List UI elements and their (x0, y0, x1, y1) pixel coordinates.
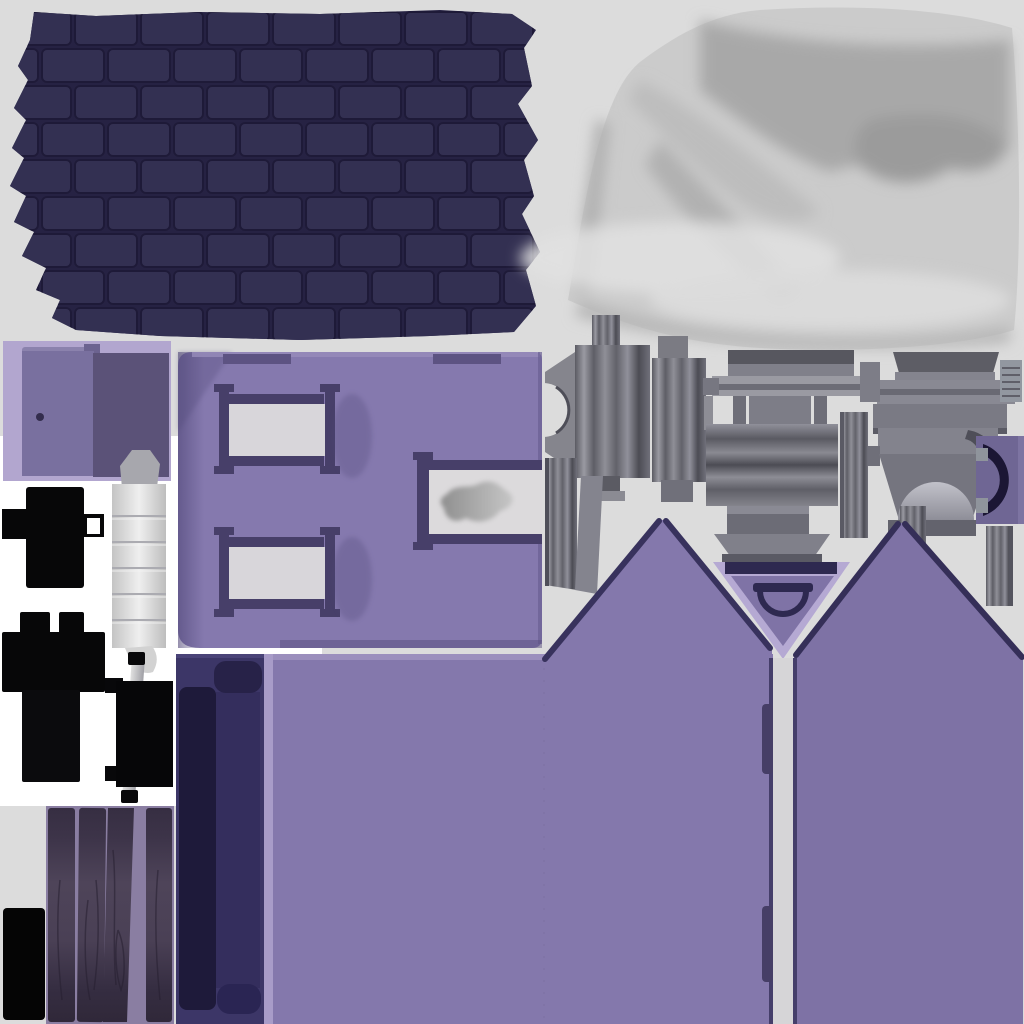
plank-2 (77, 808, 106, 1022)
dark-navy-panel (176, 654, 264, 1024)
black-square-part (3, 908, 45, 1020)
gap-handle-1 (762, 704, 773, 774)
window-frame-2 (214, 527, 372, 621)
door-panel-left (22, 351, 94, 476)
panel-pillow (214, 661, 262, 693)
roof-shingles-texture (10, 10, 540, 340)
window-frame-1 (214, 384, 372, 478)
wood-planks-texture (46, 806, 174, 1024)
window-opening-right (413, 452, 542, 550)
gap-handle-2 (762, 906, 773, 982)
c-handle-part (976, 436, 1024, 524)
wall-with-windows-texture (178, 352, 542, 648)
sill-stack-part (706, 424, 838, 562)
door-knob (36, 413, 44, 421)
side-column-part (652, 336, 713, 502)
texture-atlas (0, 0, 1024, 1024)
